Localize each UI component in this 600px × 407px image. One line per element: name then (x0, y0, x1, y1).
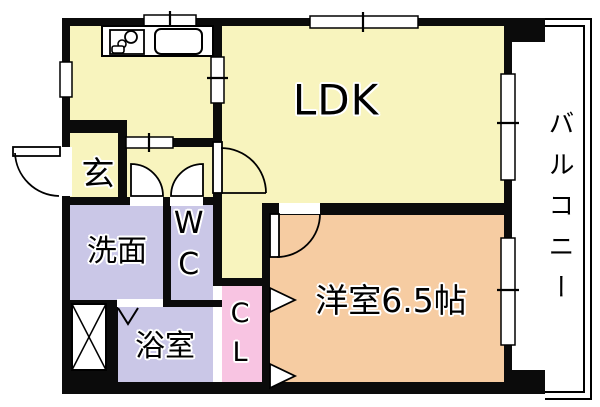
bathroom-door-gap (117, 299, 163, 307)
ldk-balcony-window (501, 74, 515, 180)
washroom-door-gap (130, 196, 163, 206)
kitchen-pass-through-window (211, 57, 224, 103)
closet-folding-door-chevron-icon-bottom (270, 364, 295, 388)
western-room-door-swing-arc-icon (277, 214, 320, 257)
label-bathroom: 浴室 (135, 331, 195, 363)
ldk-door-leaf (213, 142, 222, 193)
front-door-swing-arc-icon (15, 153, 59, 196)
front-door-leaf (13, 147, 60, 156)
western-room-door-leaf (270, 214, 279, 257)
label-closet: CL (225, 298, 254, 376)
floor-plan: LDK 玄 洗面 WC 浴室 CL 洋室6.5帖 バルコニー (0, 0, 600, 407)
label-genkan: 玄 (82, 156, 115, 192)
western-room-door-gap (279, 203, 320, 214)
bathroom-folding-door-icon (118, 308, 138, 324)
label-balcony: バルコニー (545, 110, 573, 315)
kitchen-left-window (60, 62, 72, 97)
closet-folding-door-chevron-icon-top (270, 288, 295, 312)
front-door-gap (60, 147, 72, 196)
toilet-door-gap (170, 196, 203, 206)
ldk-door-swing-arc-icon (221, 148, 266, 193)
washroom-door-swing-arc-icon (131, 164, 163, 196)
stove-grill (112, 46, 124, 53)
symbols-layer (0, 0, 600, 407)
label-western-room: 洋室6.5帖 (315, 283, 466, 319)
stove-burner-large (125, 31, 137, 43)
label-ldk: LDK (293, 77, 379, 122)
label-toilet: WC (172, 206, 204, 288)
kitchen-sink-icon (155, 29, 202, 54)
toilet-door-swing-arc-icon (171, 164, 203, 196)
label-washroom: 洗面 (87, 236, 147, 268)
western-balcony-window (501, 238, 515, 345)
